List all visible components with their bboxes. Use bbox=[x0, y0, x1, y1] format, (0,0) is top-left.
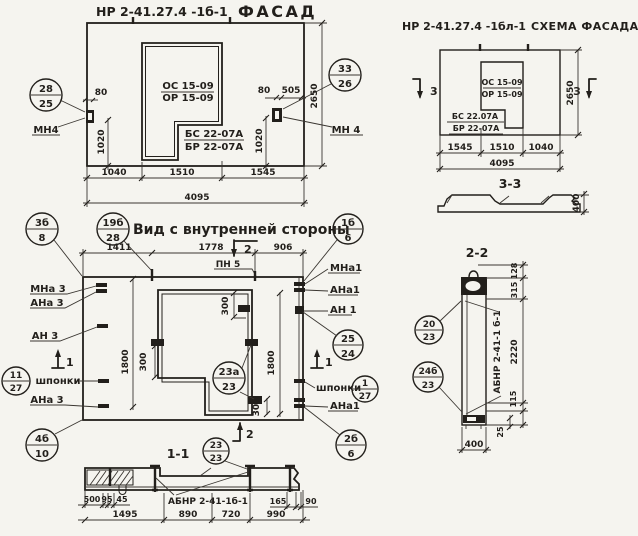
callout-top: 20 bbox=[423, 320, 436, 330]
inner-panel-outline bbox=[83, 277, 303, 420]
facade-title-code: НР 2-41.27.4 -1б-1 bbox=[96, 4, 228, 19]
dim-95: 95 bbox=[101, 495, 113, 504]
anchor-mark bbox=[294, 288, 305, 292]
dim-80-right: 80 bbox=[258, 86, 271, 96]
blueprint-sheet: НР 2-41.27.4 -1б-1 ФАСАД ОС 15-09 ОР 15-… bbox=[0, 0, 638, 536]
dim-1545: 1545 bbox=[447, 143, 472, 153]
section-3-3-label: 3-3 bbox=[499, 176, 522, 191]
label-mna3: МНа 3 bbox=[30, 284, 66, 295]
label-an1: АН 1 bbox=[330, 305, 357, 316]
anchor-block-right-core bbox=[275, 111, 279, 119]
leader bbox=[439, 387, 462, 412]
label-ana3-bottom: АНа 3 bbox=[30, 395, 63, 406]
label-bs: БС 22.07А bbox=[452, 112, 499, 121]
frame-anchor-mark bbox=[245, 339, 258, 346]
label-ana3: АНа 3 bbox=[30, 298, 63, 309]
label-or: ОР 15-09 bbox=[162, 93, 213, 104]
label-br: БР 22-07А bbox=[185, 142, 243, 153]
connector-profile bbox=[245, 466, 255, 492]
label-mn4-right: МН 4 bbox=[332, 125, 361, 136]
label-pn5: ПН 5 bbox=[216, 260, 240, 270]
label-an3: АН 3 bbox=[32, 331, 59, 342]
anchor-cavity bbox=[466, 281, 481, 291]
dim-165: 165 bbox=[270, 497, 287, 506]
callout-top: 1б bbox=[341, 217, 355, 229]
hatching bbox=[90, 471, 133, 485]
anchor-mark bbox=[98, 404, 109, 408]
edge-ticks bbox=[152, 269, 255, 281]
scheme-title-code: НР 2-41.27.4 -1бл-1 bbox=[402, 20, 526, 33]
drawing-canvas: НР 2-41.27.4 -1б-1 ФАСАД ОС 15-09 ОР 15-… bbox=[0, 0, 638, 536]
lifting-loop bbox=[469, 271, 478, 277]
callout-bottom: 23 bbox=[422, 381, 435, 391]
frame-anchor-mark bbox=[151, 339, 164, 346]
section-3-label-left: 3 bbox=[430, 85, 438, 98]
callout-top: 24б bbox=[419, 366, 438, 377]
callout-bottom: 23 bbox=[423, 333, 436, 343]
leader bbox=[55, 420, 82, 434]
dim-505: 505 bbox=[282, 86, 301, 96]
dim-1040: 1040 bbox=[101, 168, 126, 178]
label-ana1-bottom: АНа1 bbox=[330, 401, 360, 412]
extension-lines bbox=[287, 492, 301, 509]
anchor-mark bbox=[294, 404, 305, 408]
dim-25: 25 bbox=[496, 426, 505, 438]
frame-anchor-mark bbox=[238, 305, 250, 312]
callout-top: 4б bbox=[35, 433, 49, 445]
inner-view-title: Вид с внутренней стороны bbox=[133, 222, 350, 238]
section-3-arrow-left bbox=[417, 91, 423, 99]
callout-bottom: 27 bbox=[10, 384, 23, 394]
dim-1800-left: 1800 bbox=[121, 349, 131, 374]
callout-bottom: 25 bbox=[39, 99, 53, 110]
joint-line bbox=[200, 468, 211, 476]
callout-bottom: 6 bbox=[348, 449, 355, 460]
callout-top: 28 bbox=[39, 84, 53, 95]
callout-top: 23а bbox=[219, 367, 240, 378]
profile-joints bbox=[447, 195, 549, 203]
label-ana1: АНа1 bbox=[330, 285, 360, 296]
inner-window-outline bbox=[158, 290, 252, 415]
callout-top: 33 bbox=[338, 64, 352, 75]
callout-bottom: 10 bbox=[35, 449, 49, 460]
leader-lines bbox=[54, 240, 152, 276]
dim-1800-right: 1800 bbox=[267, 350, 277, 375]
dim-1411: 1411 bbox=[106, 243, 131, 253]
dim-906: 906 bbox=[274, 243, 293, 253]
facade-scheme-view: НР 2-41.27.4 -1бл-1 СХЕМА ФАСАДА ОС 15-0… bbox=[402, 20, 638, 172]
label-shponki-right: шпонки bbox=[316, 383, 361, 394]
dim-720: 720 bbox=[222, 510, 241, 520]
anchor-mark bbox=[96, 283, 107, 287]
dim-1020-left: 1020 bbox=[97, 129, 107, 154]
dim-80-left: 80 bbox=[95, 88, 108, 98]
callout-top: 3б bbox=[35, 217, 49, 229]
dim-890: 890 bbox=[179, 510, 198, 520]
leader bbox=[305, 382, 315, 388]
dim-1510: 1510 bbox=[169, 168, 194, 178]
panel-section-outline bbox=[462, 278, 486, 425]
label-os: ОС 15-09 bbox=[481, 78, 522, 87]
facade-view: НР 2-41.27.4 -1б-1 ФАСАД ОС 15-09 ОР 15-… bbox=[30, 2, 363, 207]
section-3-arrow-right bbox=[586, 91, 592, 99]
dim-1020-right: 1020 bbox=[255, 128, 265, 153]
label-shponki-left: шпонки bbox=[35, 376, 80, 387]
callout-bottom: 23 bbox=[222, 382, 236, 393]
dim-2220: 2220 bbox=[510, 339, 520, 364]
section-1-arrow-left bbox=[55, 349, 61, 357]
dim-500: 500 bbox=[84, 495, 101, 504]
dim-400: 400 bbox=[572, 194, 582, 213]
label-abnr-vertical: АБНР 2-41-1 б-1 bbox=[492, 310, 503, 393]
section-1-label-right: 1 bbox=[325, 356, 333, 369]
callout-bottom: 8 bbox=[39, 233, 46, 244]
leader bbox=[30, 405, 98, 407]
callout-top: 11 bbox=[10, 371, 23, 381]
anchor-mark bbox=[96, 289, 107, 293]
scheme-title-word: СХЕМА ФАСАДА bbox=[531, 20, 638, 33]
section-1-1-label: 1-1 bbox=[167, 446, 190, 461]
leader bbox=[225, 461, 247, 469]
section-2-label-top: 2 bbox=[244, 243, 252, 256]
anchor-mark bbox=[294, 398, 305, 402]
label-mn4-left: МН4 bbox=[33, 125, 58, 136]
section-1-label-left: 1 bbox=[66, 356, 74, 369]
label-mna1: МНа1 bbox=[330, 263, 362, 274]
dim-2650: 2650 bbox=[566, 80, 576, 105]
dim-300-left: 300 bbox=[139, 353, 149, 372]
callout-top: 25 bbox=[341, 334, 355, 345]
leader bbox=[440, 301, 461, 321]
callout-bottom: 6 bbox=[345, 233, 352, 244]
connector-profile bbox=[150, 466, 160, 492]
section-3-3-profile bbox=[438, 195, 580, 212]
dim-128: 128 bbox=[510, 262, 519, 279]
dim-1495: 1495 bbox=[112, 510, 137, 520]
dim-300-top: 300 bbox=[221, 297, 231, 316]
callout-top: 1 bbox=[362, 379, 368, 389]
section-2-arrow-bottom bbox=[237, 422, 243, 430]
dim-115: 115 bbox=[509, 390, 518, 407]
dim-1040: 1040 bbox=[528, 143, 553, 153]
key-mark bbox=[294, 379, 305, 383]
dim-1778: 1778 bbox=[198, 243, 223, 253]
dim-1545: 1545 bbox=[250, 168, 275, 178]
section-2-label-bottom: 2 bbox=[246, 428, 254, 441]
label-or: ОР 15-09 bbox=[481, 90, 522, 99]
section-3-3: 3-3 400 bbox=[438, 176, 589, 215]
anchor-mark bbox=[97, 324, 108, 328]
callout-bottom: 24 bbox=[341, 349, 355, 360]
inner-view: 3б 8 19б 28 Вид с внутренней стороны 141… bbox=[2, 213, 378, 461]
callout-top: 19б bbox=[103, 217, 124, 229]
dim-2650: 2650 bbox=[310, 83, 320, 108]
callout-bottom: 27 bbox=[359, 392, 372, 402]
dim-1510: 1510 bbox=[489, 143, 514, 153]
facade-title-word: ФАСАД bbox=[238, 2, 317, 21]
label-os: ОС 15-09 bbox=[162, 81, 213, 92]
dim-400: 400 bbox=[465, 440, 484, 450]
label-br: БР 22-07А bbox=[453, 124, 500, 133]
dim-45: 45 bbox=[116, 495, 128, 504]
leader-lines bbox=[58, 100, 85, 127]
dim-315: 315 bbox=[510, 281, 519, 298]
callout-top: 2б bbox=[344, 433, 358, 445]
section-2-2: 2-2 АБНР 2-41-1 б-1 20 23 24б 23 128 315… bbox=[413, 245, 528, 453]
callout-bottom: 26 bbox=[338, 79, 352, 90]
key-mark bbox=[98, 379, 109, 383]
anchor-block-left-core bbox=[88, 113, 92, 120]
anchor-mark bbox=[294, 282, 305, 286]
leader bbox=[304, 240, 337, 281]
section-2-2-label: 2-2 bbox=[466, 245, 489, 260]
anchor-cavity bbox=[467, 417, 476, 421]
anchor-mark bbox=[295, 306, 304, 314]
dim-990: 990 bbox=[267, 510, 286, 520]
section-1-1: 1-1 23 23 АБНР 2-41-1б-1 500 95 45 165 9… bbox=[78, 438, 318, 523]
callout-bottom: 23 bbox=[210, 454, 223, 464]
dim-4095: 4095 bbox=[184, 193, 209, 203]
callout-top: 23 bbox=[210, 441, 223, 451]
label-abnr: АБНР 2-41-1б-1 bbox=[168, 496, 248, 507]
dim-90: 90 bbox=[305, 497, 317, 506]
label-bs: БС 22-07А bbox=[185, 129, 243, 140]
dim-4095: 4095 bbox=[489, 159, 514, 169]
pn5-leader bbox=[214, 269, 256, 276]
section-1-arrow-right bbox=[314, 349, 320, 357]
